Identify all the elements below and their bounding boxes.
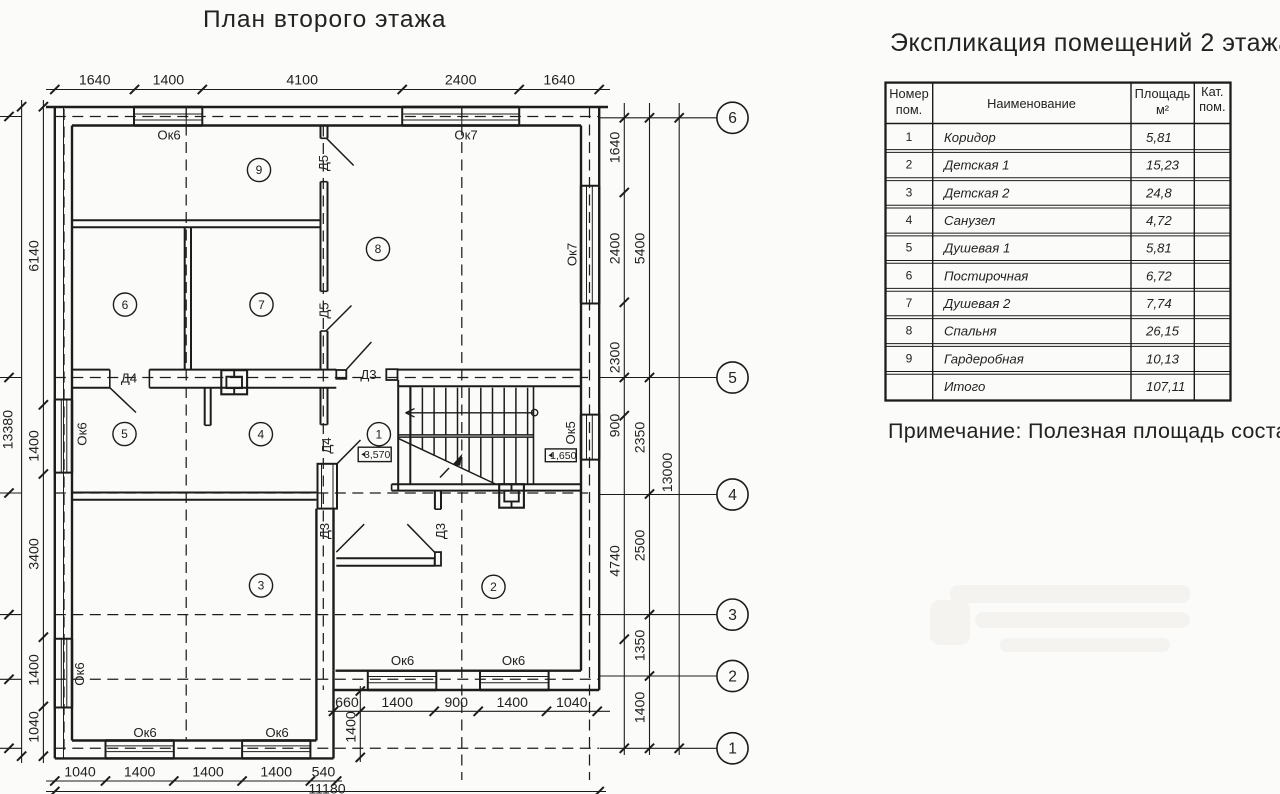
svg-text:1040: 1040	[26, 711, 42, 743]
svg-text:5,81: 5,81	[1146, 241, 1172, 256]
svg-text:2: 2	[906, 158, 913, 172]
svg-text:6140: 6140	[26, 240, 42, 272]
svg-text:План второго этажа: План второго этажа	[203, 6, 447, 33]
svg-text:6: 6	[906, 268, 913, 282]
svg-text:107,11: 107,11	[1146, 379, 1185, 394]
svg-text:13380: 13380	[1, 410, 17, 450]
svg-text:Детская 1: Детская 1	[942, 158, 1010, 173]
svg-text:1640: 1640	[79, 73, 111, 89]
svg-text:Ок6: Ок6	[502, 653, 525, 668]
svg-text:10,13: 10,13	[1146, 351, 1180, 366]
svg-text:Кат.: Кат.	[1201, 84, 1223, 99]
svg-text:4,72: 4,72	[1146, 213, 1172, 228]
svg-text:4: 4	[728, 487, 737, 504]
svg-text:6,72: 6,72	[1146, 268, 1172, 283]
svg-text:3: 3	[906, 185, 913, 199]
svg-text:3400: 3400	[26, 538, 42, 570]
svg-text:Детская 2: Детская 2	[942, 185, 1010, 200]
svg-text:Душевая 1: Душевая 1	[942, 241, 1010, 256]
svg-text:Постирочная: Постирочная	[944, 268, 1028, 283]
svg-text:Ок7: Ок7	[565, 243, 580, 266]
svg-text:1400: 1400	[26, 430, 42, 462]
svg-text:2300: 2300	[607, 342, 623, 374]
svg-text:3: 3	[258, 579, 265, 593]
svg-text:540: 540	[312, 765, 336, 781]
svg-text:9: 9	[906, 351, 913, 365]
svg-text:Ок7: Ок7	[454, 128, 477, 143]
svg-text:6: 6	[728, 110, 737, 127]
svg-text:11180: 11180	[308, 782, 345, 794]
svg-text:13000: 13000	[660, 453, 676, 493]
svg-text:26,15: 26,15	[1145, 324, 1180, 339]
svg-text:Ок6: Ок6	[265, 725, 288, 740]
svg-text:Д4: Д4	[319, 437, 334, 453]
svg-text:1640: 1640	[543, 73, 575, 89]
svg-text:4: 4	[258, 427, 265, 441]
svg-text:2400: 2400	[445, 73, 477, 89]
svg-text:Ок6: Ок6	[72, 662, 87, 685]
svg-text:1400: 1400	[124, 765, 156, 781]
svg-text:2500: 2500	[633, 530, 649, 562]
svg-text:1400: 1400	[192, 765, 224, 781]
svg-text:7: 7	[258, 298, 265, 312]
svg-text:Коридор: Коридор	[944, 130, 996, 145]
svg-text:5: 5	[728, 370, 737, 387]
svg-text:Итого: Итого	[944, 379, 985, 394]
svg-text:Ок6: Ок6	[157, 128, 180, 143]
svg-text:1400: 1400	[633, 692, 649, 724]
svg-text:15,23: 15,23	[1146, 158, 1180, 173]
svg-text:Д5: Д5	[317, 302, 332, 318]
svg-text:Экспликация помещений 2 этажа: Экспликация помещений 2 этажа	[890, 29, 1280, 57]
svg-text:6: 6	[122, 298, 129, 312]
svg-text:4740: 4740	[607, 545, 623, 577]
svg-text:7: 7	[906, 296, 913, 310]
svg-text:1: 1	[376, 427, 383, 441]
svg-text:Д3: Д3	[433, 523, 448, 539]
svg-text:1,650: 1,650	[550, 450, 576, 462]
svg-text:Номер: Номер	[889, 86, 928, 101]
svg-text:Гардеробная: Гардеробная	[944, 351, 1024, 366]
svg-text:Спальня: Спальня	[944, 324, 997, 339]
svg-text:1: 1	[728, 741, 737, 758]
svg-text:1400: 1400	[381, 695, 413, 711]
svg-text:Ок6: Ок6	[133, 725, 156, 740]
svg-text:1040: 1040	[64, 765, 96, 781]
svg-text:9: 9	[256, 163, 263, 177]
svg-text:1400: 1400	[153, 73, 185, 89]
svg-text:1350: 1350	[633, 630, 649, 662]
svg-text:Д3: Д3	[317, 523, 332, 539]
svg-text:8: 8	[375, 242, 382, 256]
svg-text:1400: 1400	[344, 711, 360, 743]
svg-text:Санузел: Санузел	[944, 213, 996, 228]
svg-text:7,74: 7,74	[1146, 296, 1172, 311]
svg-text:Примечание: Полезная площадь с: Примечание: Полезная площадь составляет	[888, 419, 1280, 443]
svg-text:Ок6: Ок6	[75, 422, 90, 445]
svg-text:Д4: Д4	[121, 371, 137, 386]
svg-text:5: 5	[906, 241, 913, 255]
svg-text:3,570: 3,570	[364, 449, 390, 461]
svg-text:Площадь: Площадь	[1135, 86, 1191, 101]
svg-text:24,8: 24,8	[1145, 185, 1172, 200]
svg-text:1400: 1400	[26, 654, 42, 686]
svg-text:Д3: Д3	[360, 367, 376, 382]
svg-text:1400: 1400	[260, 765, 292, 781]
svg-text:2350: 2350	[633, 422, 649, 454]
svg-text:5,81: 5,81	[1146, 130, 1172, 145]
svg-text:900: 900	[607, 414, 623, 438]
svg-text:Душевая 2: Душевая 2	[942, 296, 1011, 311]
svg-text:3: 3	[728, 607, 737, 624]
svg-text:Ок6: Ок6	[391, 653, 414, 668]
svg-text:5: 5	[121, 427, 128, 441]
svg-text:Д5: Д5	[316, 155, 331, 171]
svg-text:2: 2	[728, 668, 737, 685]
svg-text:1400: 1400	[497, 695, 529, 711]
svg-text:Наименование: Наименование	[987, 96, 1076, 111]
svg-text:660: 660	[335, 695, 359, 711]
svg-text:1640: 1640	[607, 132, 623, 164]
svg-text:Ок5: Ок5	[563, 421, 578, 444]
svg-text:5400: 5400	[633, 233, 649, 265]
svg-text:8: 8	[906, 324, 913, 338]
svg-text:1040: 1040	[556, 695, 588, 711]
svg-text:пом.: пом.	[1199, 99, 1225, 114]
svg-text:4: 4	[906, 213, 913, 227]
svg-text:4100: 4100	[286, 73, 318, 89]
svg-text:1: 1	[906, 130, 913, 144]
svg-text:м²: м²	[1156, 102, 1170, 117]
svg-text:2400: 2400	[607, 233, 623, 265]
svg-text:пом.: пом.	[896, 102, 922, 117]
svg-text:900: 900	[444, 695, 468, 711]
svg-text:2: 2	[490, 580, 497, 594]
